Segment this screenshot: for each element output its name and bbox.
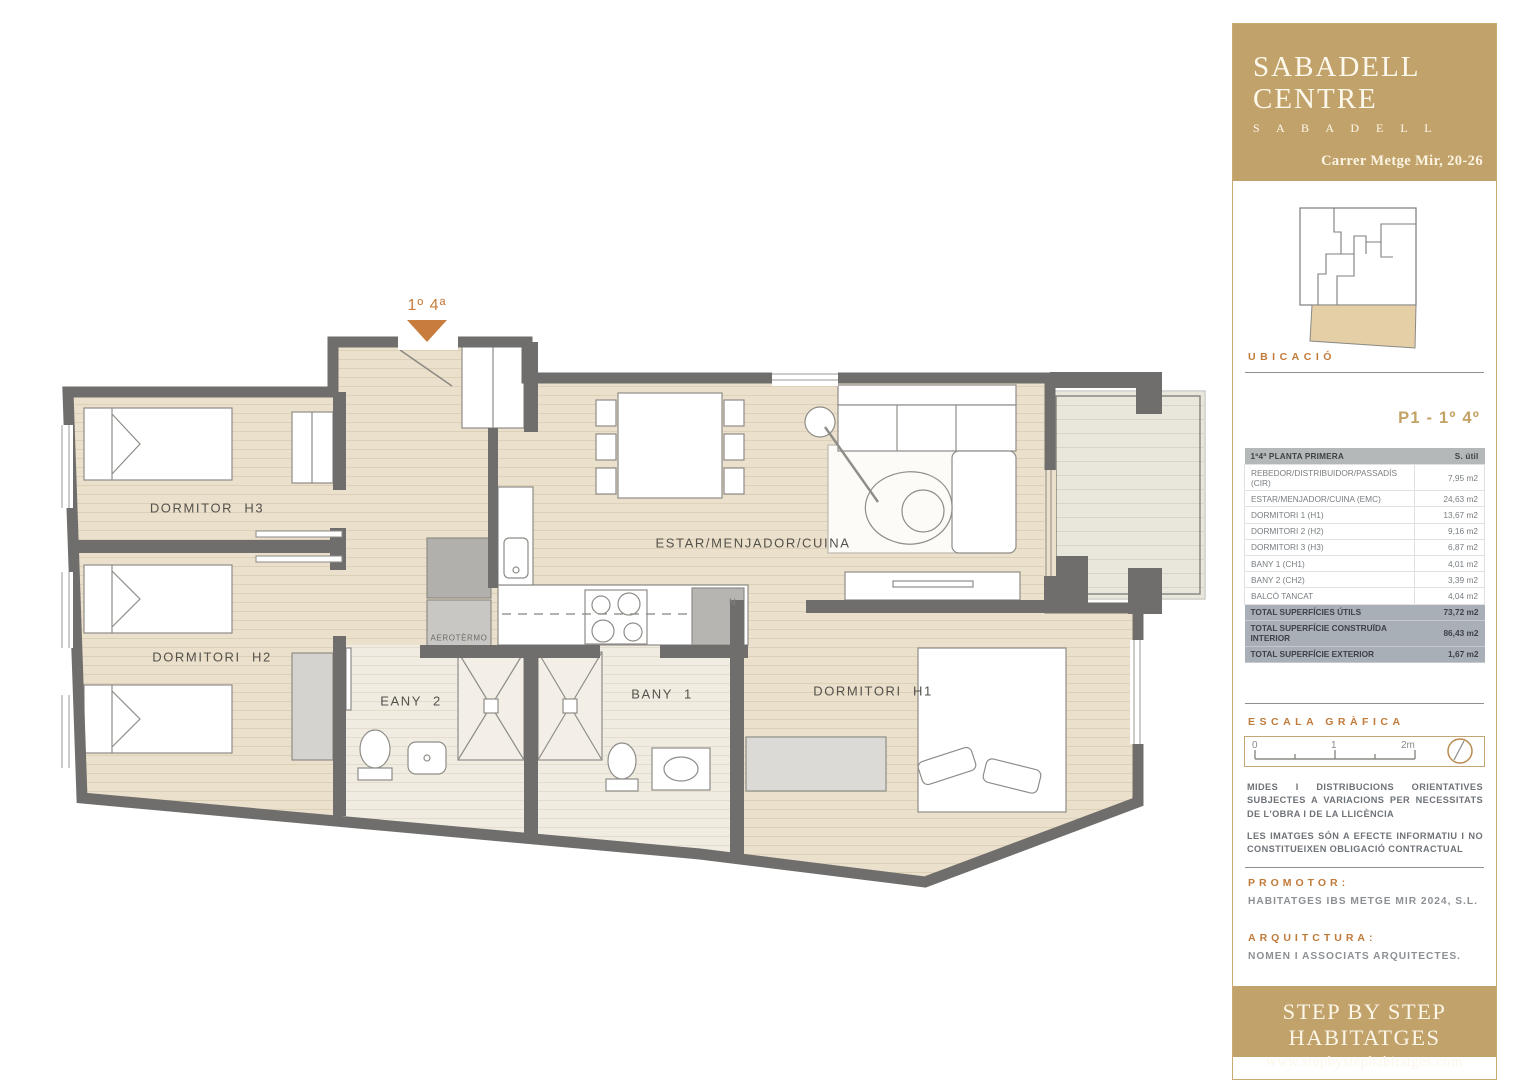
table-row: DORMITORI 2 (H2)9,16 m2: [1245, 523, 1485, 539]
room-label-dormitor-h3: DORMITOR H3: [150, 501, 264, 516]
label-fridge-n: N: [729, 597, 737, 607]
label-aerotermo: AEROTÈRMO: [431, 634, 488, 643]
promoter-label: PROMOTOR:: [1248, 877, 1483, 889]
bed-h2-upper: [84, 565, 232, 633]
unit-reference: P1 - 1º 4º: [1398, 409, 1480, 428]
location-label: UBICACIÓ: [1248, 351, 1336, 363]
footer-website: www.stepbystephabitatges.com: [1233, 1054, 1496, 1071]
kitchen-counter: [498, 585, 748, 645]
architecture-name: NOMEN I ASSOCIATS ARQUITECTES.: [1248, 951, 1483, 962]
project-title: SABADELL CENTRE: [1253, 51, 1480, 116]
room-label-bany2: EANY 2: [380, 694, 442, 709]
table-row: ESTAR/MENJADOR/CUINA (EMC)24,63 m2: [1245, 491, 1485, 507]
bed-h3: [84, 408, 232, 480]
north-compass-icon: [1448, 739, 1472, 763]
scale-label: ESCALA GRÀFICA: [1248, 716, 1405, 728]
areas-table: 1º4ª PLANTA PRIMERA S. útil REBEDOR/DIST…: [1244, 448, 1485, 663]
scale-tick-0: 0: [1252, 740, 1258, 751]
areas-table-body: REBEDOR/DISTRIBUIDOR/PASSADÍS (CIR)7,95 …: [1245, 465, 1485, 663]
aerotermo-unit: [427, 538, 491, 598]
table-total-row: TOTAL SUPERFÍCIES ÚTILS73,72 m2: [1245, 604, 1485, 620]
divider: [1245, 372, 1484, 373]
room-label-living: ESTAR/MENJADOR/CUINA: [656, 536, 851, 551]
info-panel: SABADELL CENTRE S A B A D E L L Carrer M…: [1232, 23, 1497, 1080]
table-row: BANY 2 (CH2)3,39 m2: [1245, 572, 1485, 588]
floor-plan: 1º 4ª DORMITOR H3 DORMITORI H2 ESTAR/MEN…: [0, 0, 1232, 1080]
scale-tick-2: 2m: [1401, 740, 1415, 751]
table-header-row: 1º4ª PLANTA PRIMERA S. útil: [1245, 448, 1485, 465]
table-row: DORMITORI 3 (H3)6,87 m2: [1245, 539, 1485, 555]
wardrobe-h2: [292, 653, 333, 760]
shower-bany1: [538, 652, 602, 760]
disclaimer-text: MIDES I DISTRIBUCIONS ORIENTATIVES SUBJE…: [1247, 781, 1483, 866]
table-row: REBEDOR/DISTRIBUIDOR/PASSADÍS (CIR)7,95 …: [1245, 465, 1485, 491]
architecture-label: ARQUITCTURA:: [1248, 932, 1483, 944]
promoter-name: HABITATGES IBS METGE MIR 2024, S.L.: [1248, 896, 1483, 907]
wardrobe-h3: [292, 412, 333, 483]
promoter-block: PROMOTOR: HABITATGES IBS METGE MIR 2024,…: [1248, 877, 1483, 907]
divider: [1245, 867, 1484, 868]
project-header: SABADELL CENTRE S A B A D E L L Carrer M…: [1233, 24, 1496, 181]
bed-h2-lower: [84, 685, 232, 753]
table-total-row: TOTAL SUPERFÍCIE EXTERIOR1,67 m2: [1245, 646, 1485, 662]
bath-door-leaf: [346, 648, 351, 710]
table-row: BANY 1 (CH1)4,01 m2: [1245, 555, 1485, 571]
table-row: BALCÓ TANCAT4,04 m2: [1245, 588, 1485, 604]
footer-banner: STEP BY STEP HABITATGES www.stepbystepha…: [1233, 986, 1496, 1057]
floor-plan-drawing: [0, 0, 1232, 1080]
room-label-dormitori-h2: DORMITORI H2: [152, 650, 272, 665]
room-label-bany1: BANY 1: [631, 687, 693, 702]
project-address: Carrer Metge Mir, 20-26: [1321, 153, 1483, 170]
toilet-bany1: [606, 743, 638, 791]
building-footprint: [1290, 202, 1440, 352]
sink-bany2: [408, 742, 446, 774]
room-label-dormitori-h1: DORMITORI H1: [813, 684, 933, 699]
entry-closet: [462, 346, 524, 428]
project-city: S A B A D E L L: [1253, 121, 1480, 136]
table-total-row: TOTAL SUPERFÍCIE CONSTRUÏDA INTERIOR86,4…: [1245, 620, 1485, 646]
table-header-value: S. útil: [1415, 448, 1485, 465]
toilet-bany2: [358, 730, 392, 780]
scale-bar: 0 1 2m: [1244, 736, 1485, 767]
bed-h1: [917, 648, 1066, 812]
location-diagram: [1233, 202, 1496, 357]
scale-tick-1: 1: [1331, 740, 1337, 751]
shower-bany2: [458, 652, 524, 760]
highlighted-unit: [1310, 305, 1416, 348]
sideboard-h1: [746, 737, 886, 791]
disclaimer-paragraph-1: MIDES I DISTRIBUCIONS ORIENTATIVES SUBJE…: [1247, 781, 1483, 821]
kitchen-sink-column: [498, 487, 533, 585]
divider: [1245, 703, 1484, 704]
table-row: DORMITORI 1 (H1)13,67 m2: [1245, 507, 1485, 523]
table-header-name: 1º4ª PLANTA PRIMERA: [1245, 448, 1415, 465]
vanity-bany1: [652, 748, 710, 790]
dining-table: [596, 393, 744, 498]
entrance-unit-label: 1º 4ª: [407, 297, 446, 315]
architecture-block: ARQUITCTURA: NOMEN I ASSOCIATS ARQUITECT…: [1248, 932, 1483, 962]
footer-brand: STEP BY STEP HABITATGES: [1233, 999, 1496, 1051]
tv-console: [845, 572, 1020, 600]
disclaimer-paragraph-2: LES IMATGES SÓN A EFECTE INFORMATIU I NO…: [1247, 830, 1483, 857]
